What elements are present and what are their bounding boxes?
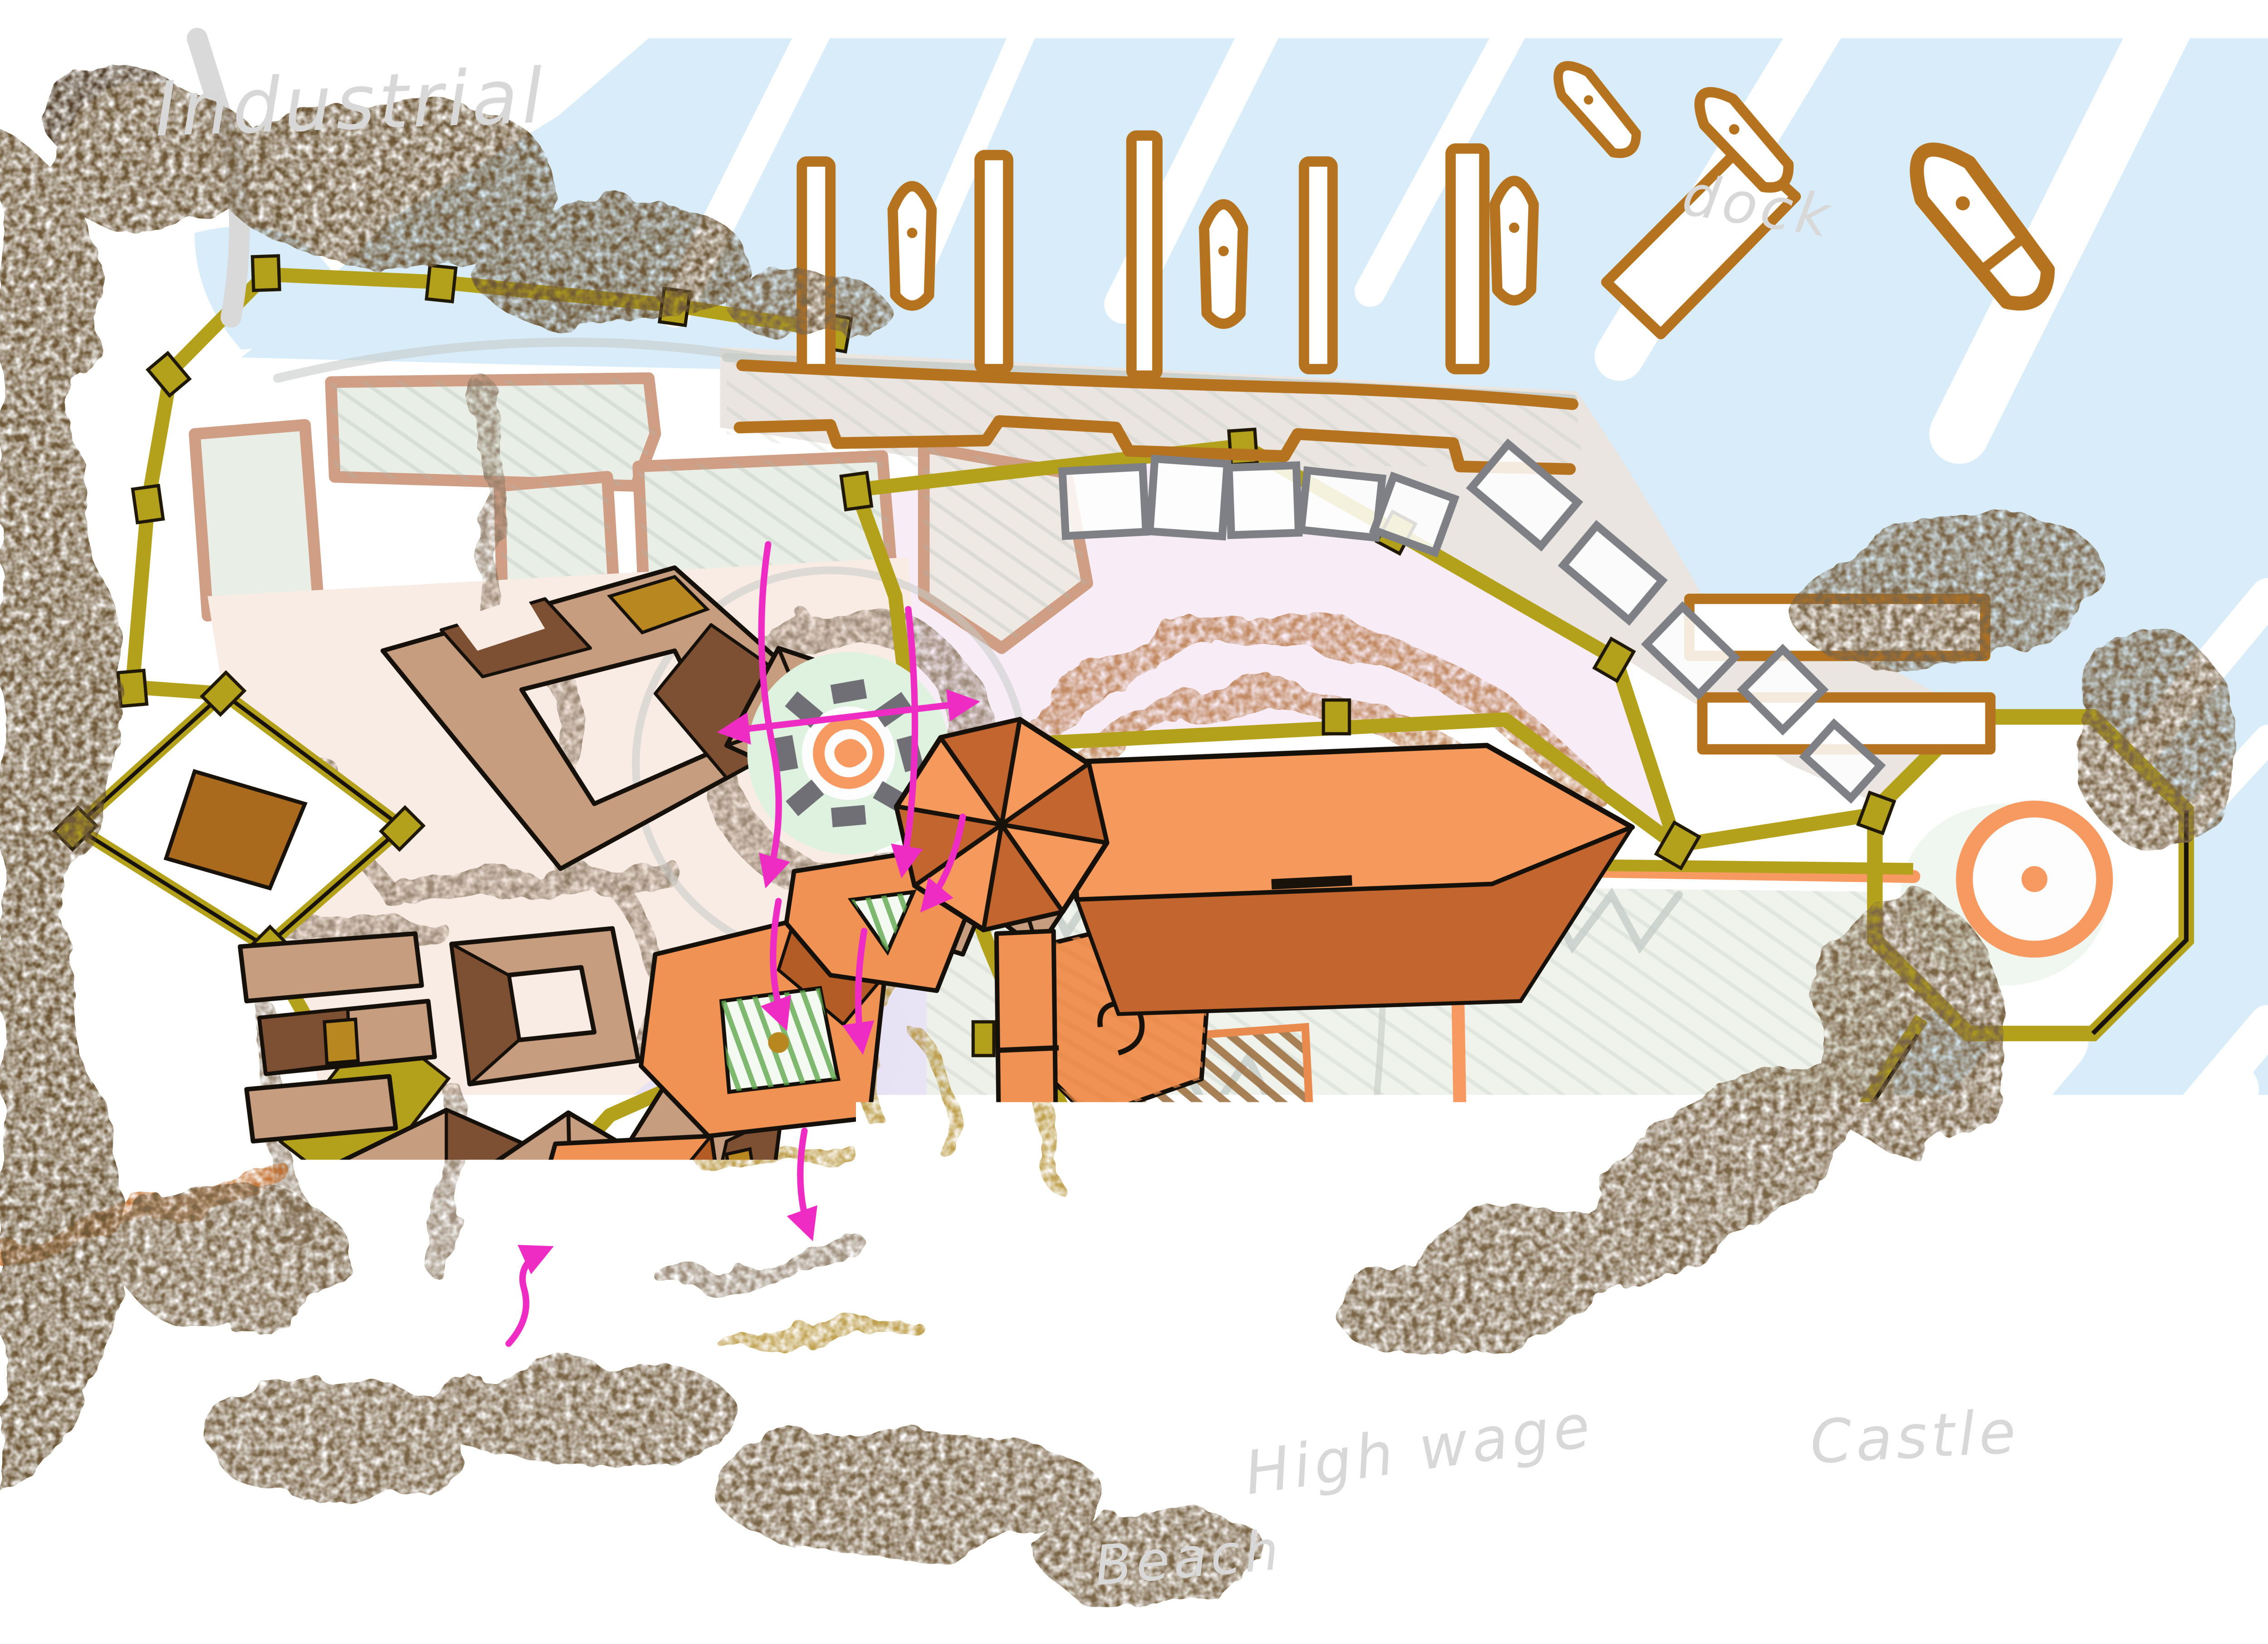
field-plot <box>195 425 318 616</box>
gray-shed <box>1301 470 1382 538</box>
town-block <box>246 1076 396 1141</box>
gray-shed <box>1150 459 1227 536</box>
round-tower-center <box>2022 866 2048 892</box>
wall-tower <box>253 256 280 290</box>
town-block-ochre <box>727 1149 755 1188</box>
scrub-blob <box>117 1183 350 1333</box>
wall-tower <box>133 485 163 523</box>
wing-buttress <box>973 1152 994 1185</box>
pier <box>1131 136 1157 376</box>
scrub-blob <box>428 1359 739 1468</box>
label-industrial: Industrial <box>153 53 548 154</box>
pier <box>1304 161 1333 369</box>
scrub-blob <box>1810 895 2004 1154</box>
scrub-blob <box>714 1429 1103 1554</box>
scrub-blob <box>2076 629 2232 849</box>
wall-tower <box>763 1377 789 1411</box>
boat-icon <box>1495 181 1534 300</box>
street <box>389 875 675 885</box>
keep-ridge-mark <box>1271 881 1352 885</box>
forest-blob <box>467 201 753 330</box>
boat-icon <box>893 186 932 305</box>
label-castle: Castle <box>1809 1397 2021 1478</box>
orange-block-ochre <box>576 1210 607 1252</box>
forest-blob <box>727 268 882 341</box>
wall-tower <box>841 473 871 510</box>
standing-stone <box>831 805 866 827</box>
town-block-ochre <box>324 1019 358 1063</box>
city-map-canvas: Industrial dock High wage Beach Castle <box>0 0 2268 1644</box>
boat-icon <box>1204 204 1243 323</box>
wall-tower <box>426 265 456 302</box>
wall-tower <box>1324 700 1349 734</box>
courtyard-well <box>768 1032 789 1053</box>
pier <box>1451 148 1484 369</box>
wing-buttress <box>973 1022 994 1056</box>
gray-shed <box>1062 467 1146 536</box>
scrub-blob <box>208 1377 467 1502</box>
gray-shed <box>1229 465 1299 535</box>
wall-tower <box>1158 1329 1188 1366</box>
pier <box>980 155 1008 369</box>
wall-tower <box>361 1269 392 1306</box>
